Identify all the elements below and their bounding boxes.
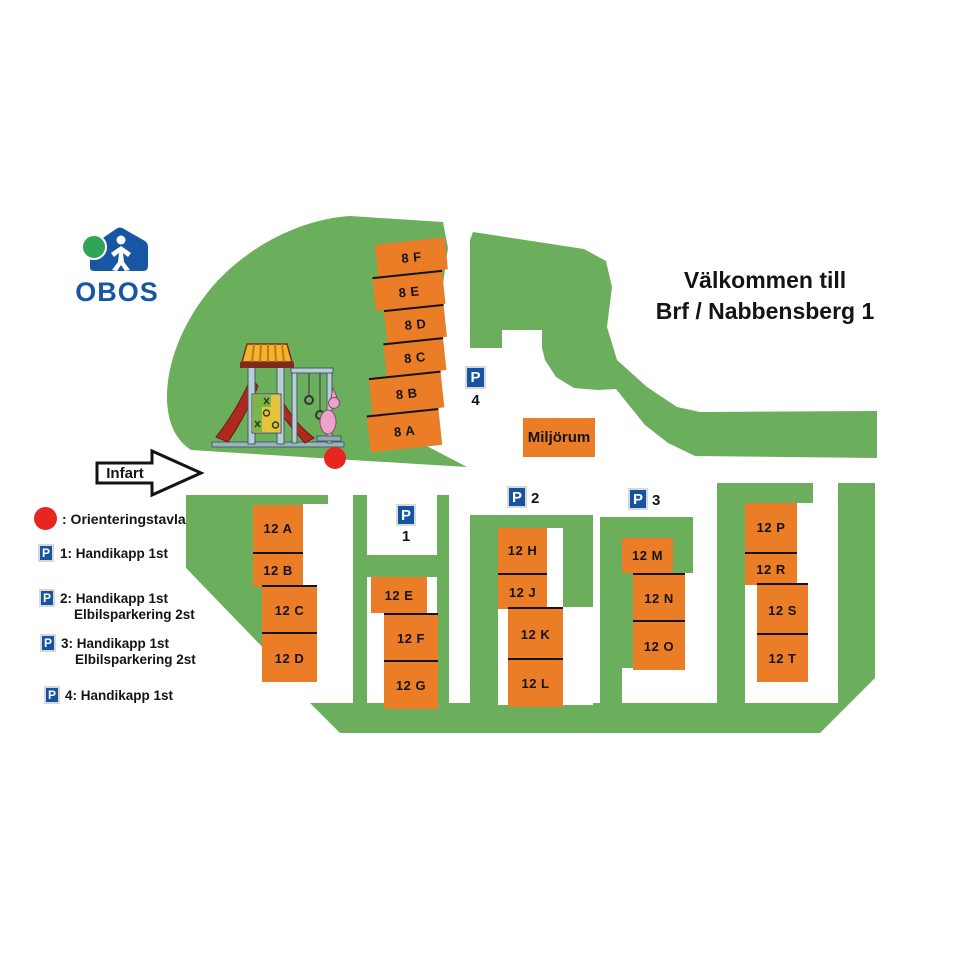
- building-label: 12 G: [396, 678, 426, 693]
- grass-bar-1: [353, 495, 367, 733]
- parking-p-icon: P: [512, 489, 522, 506]
- building-label: 12 N: [644, 591, 673, 606]
- grass-strip-under-p1: [367, 555, 449, 577]
- building-label: 8 A: [393, 423, 416, 440]
- building-label: 12 R: [756, 562, 785, 577]
- title-line-1: Välkommen till: [590, 265, 940, 296]
- grass-bar-2: [437, 495, 449, 733]
- building-label: 12 J: [509, 585, 536, 600]
- building-label: 8 C: [403, 349, 426, 366]
- legend-p1-text: 1: Handikapp 1st: [60, 546, 168, 561]
- obos-wordmark: OBOS: [62, 277, 172, 308]
- building-label: 12 D: [275, 651, 304, 666]
- miljorum-building: Miljörum: [523, 418, 595, 457]
- building-12d: 12 D: [262, 632, 317, 682]
- obos-logo-icon: [82, 228, 148, 272]
- building-12f: 12 F: [384, 613, 438, 662]
- legend-orientation-label: : Orienteringstavla: [62, 511, 186, 527]
- parking-number-2: 2: [531, 490, 539, 507]
- building-12o: 12 O: [633, 620, 685, 670]
- building-label: 12 M: [632, 548, 663, 563]
- building-label: 8 D: [404, 316, 427, 333]
- building-label: 12 P: [757, 520, 786, 535]
- building-8a: 8 A: [367, 408, 442, 452]
- roof-base: [240, 362, 294, 368]
- building-12h: 12 H: [498, 528, 547, 573]
- building-label: 12 C: [275, 603, 304, 618]
- building-12a: 12 A: [253, 505, 303, 552]
- parking-p-icon: P: [470, 369, 480, 386]
- parking-sign-1: P: [396, 504, 416, 526]
- building-label: 12 F: [397, 631, 425, 646]
- parking-sign-3: P: [628, 488, 648, 510]
- building-label: 12 L: [521, 676, 549, 691]
- swing-post: [292, 373, 297, 443]
- building-12c: 12 C: [262, 585, 317, 634]
- building-label: 12 S: [768, 603, 797, 618]
- building-label: 12 B: [263, 563, 292, 578]
- legend-p3-text: 3: Handikapp 1st: [61, 636, 169, 651]
- building-12n: 12 N: [633, 573, 685, 622]
- building-12r: 12 R: [745, 552, 797, 585]
- legend-p3-icon: P: [40, 634, 56, 652]
- legend-p3-text-2: Elbilsparkering 2st: [75, 652, 196, 667]
- building-12g: 12 G: [384, 660, 438, 709]
- building-label: 8 E: [398, 283, 420, 300]
- miljorum-label: Miljörum: [528, 429, 591, 446]
- building-label: 8 B: [395, 385, 418, 402]
- parking-number-1: 1: [396, 528, 416, 545]
- parking-p-icon: P: [633, 491, 643, 508]
- building-12e: 12 E: [371, 577, 427, 613]
- legend-p2-text-2: Elbilsparkering 2st: [74, 607, 195, 622]
- building-12j: 12 J: [498, 573, 547, 609]
- building-label: 12 K: [521, 627, 550, 642]
- building-12s: 12 S: [757, 583, 808, 635]
- page-title: Välkommen till Brf / Nabbensberg 1: [590, 265, 940, 327]
- parking-sign-4: P: [465, 366, 486, 389]
- swing-top-bar: [291, 368, 333, 373]
- parking-sign-2: P: [507, 486, 527, 508]
- title-line-2: Brf / Nabbensberg 1: [590, 296, 940, 327]
- building-label: 12 T: [768, 651, 796, 666]
- legend-p2-icon: P: [39, 589, 55, 607]
- building-12t: 12 T: [757, 633, 808, 682]
- legend-p2-text: 2: Handikapp 1st: [60, 591, 168, 606]
- building-label: 8 F: [401, 248, 423, 265]
- parking-number-4: 4: [465, 392, 486, 409]
- legend-p4-text: 4: Handikapp 1st: [65, 688, 173, 703]
- site-map-page: 8 F 8 E 8 D 8 C 8 B 8 A 12 A 12 B 12 C 1…: [0, 0, 960, 960]
- orientation-board-marker: [324, 447, 346, 469]
- building-12p: 12 P: [745, 503, 797, 552]
- building-label: 12 A: [264, 521, 293, 536]
- parking-p-icon: P: [401, 507, 411, 524]
- building-12k: 12 K: [508, 607, 563, 660]
- building-12l: 12 L: [508, 658, 563, 707]
- building-12b: 12 B: [253, 552, 303, 587]
- rocker-toy: [320, 410, 336, 434]
- building-label: 12 O: [644, 639, 674, 654]
- entrance-label: Infart: [98, 465, 152, 482]
- building-label: 12 E: [385, 588, 414, 603]
- building-12m: 12 M: [622, 538, 673, 573]
- legend-orientation-marker-icon: [34, 507, 57, 530]
- building-label: 12 H: [508, 543, 537, 558]
- legend-p1-icon: P: [38, 544, 54, 562]
- legend-p4-icon: P: [44, 686, 60, 704]
- parking-number-3: 3: [652, 492, 660, 509]
